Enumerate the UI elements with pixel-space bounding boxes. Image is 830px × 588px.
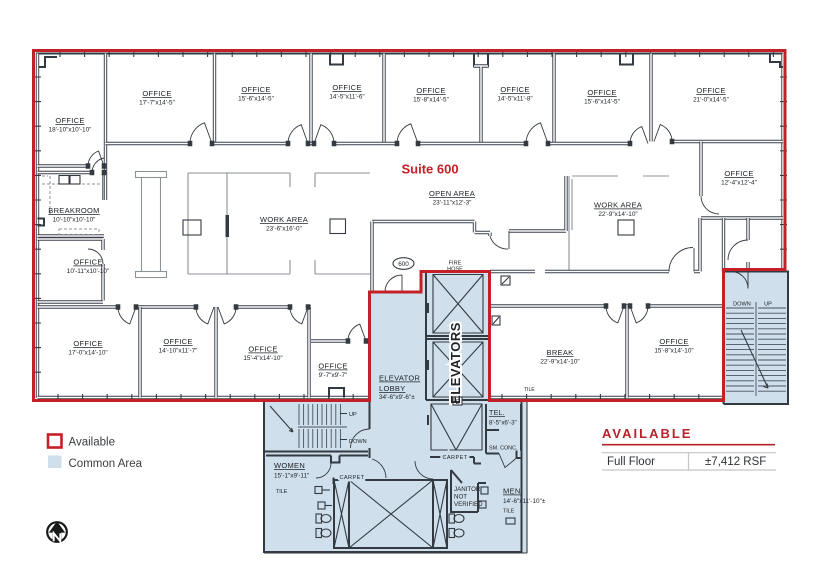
svg-text:Available: Available bbox=[69, 437, 115, 449]
svg-text:BREAK: BREAK bbox=[547, 348, 574, 357]
svg-text:WORK AREA: WORK AREA bbox=[594, 201, 642, 210]
svg-text:18'-10"x10'-10": 18'-10"x10'-10" bbox=[49, 127, 92, 134]
svg-text:34'-6"x9'-6"±: 34'-6"x9'-6"± bbox=[379, 394, 415, 401]
svg-text:14'-5"x11'-8": 14'-5"x11'-8" bbox=[497, 96, 532, 103]
svg-text:600: 600 bbox=[398, 261, 409, 268]
svg-text:15'-8"x14'-5": 15'-8"x14'-5" bbox=[413, 97, 449, 104]
svg-text:OFFICE: OFFICE bbox=[332, 83, 361, 92]
svg-text:SM. CONC.: SM. CONC. bbox=[489, 446, 517, 452]
svg-text:MEN: MEN bbox=[503, 487, 521, 496]
svg-text:UP: UP bbox=[764, 302, 772, 308]
svg-text:WORK AREA: WORK AREA bbox=[260, 215, 308, 224]
svg-text:Common Area: Common Area bbox=[69, 458, 143, 470]
svg-text:10'-10"x10'-10": 10'-10"x10'-10" bbox=[53, 217, 96, 224]
svg-text:15'-1"x9'-11": 15'-1"x9'-11" bbox=[274, 473, 309, 480]
svg-text:15'-8"x14'-10": 15'-8"x14'-10" bbox=[654, 348, 693, 355]
svg-text:TILE: TILE bbox=[276, 489, 288, 495]
svg-text:22'-9"x14'-10": 22'-9"x14'-10" bbox=[540, 359, 579, 366]
svg-text:15'-4"x14'-10": 15'-4"x14'-10" bbox=[243, 355, 282, 362]
svg-text:22'-9"x14'-10": 22'-9"x14'-10" bbox=[598, 211, 637, 218]
svg-text:CARPET: CARPET bbox=[442, 455, 467, 461]
svg-text:DOWN: DOWN bbox=[733, 302, 751, 308]
svg-text:OFFICE: OFFICE bbox=[659, 337, 688, 346]
svg-text:Suite 600: Suite 600 bbox=[402, 162, 459, 177]
svg-text:23'-6"x16'-0": 23'-6"x16'-0" bbox=[266, 226, 302, 233]
svg-text:OFFICE: OFFICE bbox=[724, 169, 753, 178]
svg-text:OFFICE: OFFICE bbox=[500, 85, 529, 94]
svg-text:TEL.: TEL. bbox=[489, 410, 505, 417]
svg-text:OFFICE: OFFICE bbox=[416, 86, 445, 95]
svg-text:CARPET: CARPET bbox=[339, 475, 364, 481]
svg-text:OFFICE: OFFICE bbox=[587, 88, 616, 97]
svg-text:14'-5"x11'-6": 14'-5"x11'-6" bbox=[329, 94, 364, 101]
svg-text:OFFICE: OFFICE bbox=[55, 116, 84, 125]
svg-text:9'-7"x9'-7": 9'-7"x9'-7" bbox=[319, 372, 348, 379]
svg-text:17'-7"x14'-5": 17'-7"x14'-5" bbox=[139, 100, 175, 107]
svg-text:15'-6"x14'-5": 15'-6"x14'-5" bbox=[238, 96, 274, 103]
svg-text:OFFICE: OFFICE bbox=[73, 339, 102, 348]
svg-text:OFFICE: OFFICE bbox=[73, 258, 102, 267]
svg-text:AVAILABLE: AVAILABLE bbox=[602, 426, 692, 441]
svg-text:±7,412 RSF: ±7,412 RSF bbox=[705, 456, 766, 468]
svg-text:12'-4"x12'-4": 12'-4"x12'-4" bbox=[721, 180, 757, 187]
svg-text:21'-0"x14'-5": 21'-0"x14'-5" bbox=[693, 97, 729, 104]
svg-text:JANITOR: JANITOR bbox=[454, 486, 481, 493]
svg-text:UP: UP bbox=[349, 412, 357, 418]
svg-text:TILE: TILE bbox=[503, 509, 515, 515]
svg-text:ELEVATORS: ELEVATORS bbox=[448, 322, 463, 404]
svg-text:8'-5"x6'-3": 8'-5"x6'-3" bbox=[489, 420, 517, 427]
svg-text:LOBBY: LOBBY bbox=[379, 384, 406, 393]
svg-text:14'-10"x11'-7": 14'-10"x11'-7" bbox=[159, 348, 198, 355]
svg-text:OFFICE: OFFICE bbox=[142, 89, 171, 98]
svg-text:WOMEN: WOMEN bbox=[274, 461, 305, 470]
svg-text:ELEVATOR: ELEVATOR bbox=[379, 374, 420, 383]
svg-text:OFFICE: OFFICE bbox=[696, 86, 725, 95]
svg-text:OFFICE: OFFICE bbox=[241, 85, 270, 94]
svg-text:OPEN AREA: OPEN AREA bbox=[429, 189, 475, 198]
svg-text:E: E bbox=[455, 400, 459, 406]
svg-text:17'-0"x14'-10": 17'-0"x14'-10" bbox=[68, 350, 107, 357]
svg-text:14'-6"x11'-10"±: 14'-6"x11'-10"± bbox=[503, 498, 546, 505]
svg-text:NOT: NOT bbox=[454, 494, 467, 501]
svg-text:15'-6"x14'-5": 15'-6"x14'-5" bbox=[584, 99, 620, 106]
svg-text:OFFICE: OFFICE bbox=[163, 337, 192, 346]
svg-text:Full Floor: Full Floor bbox=[607, 456, 655, 468]
svg-text:OFFICE: OFFICE bbox=[248, 345, 277, 354]
svg-text:TILE: TILE bbox=[524, 387, 535, 393]
svg-text:OFFICE: OFFICE bbox=[318, 362, 347, 371]
svg-text:10'-11"x10'-10": 10'-11"x10'-10" bbox=[67, 268, 109, 275]
svg-text:BREAKROOM: BREAKROOM bbox=[48, 206, 99, 215]
svg-text:23'-11"x12'-3": 23'-11"x12'-3" bbox=[433, 200, 472, 207]
